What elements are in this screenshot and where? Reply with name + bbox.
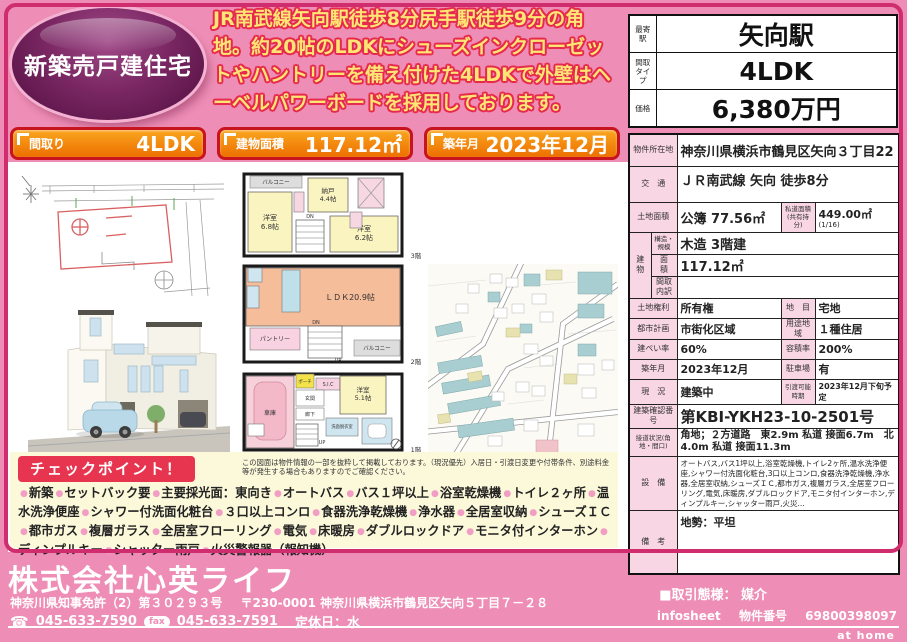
- layout-detail-label: 間取内訳: [651, 276, 677, 298]
- floor-plan-3f: バルコニー 洋室 6.8帖 納戸 4.4帖 洋室 6.2帖 DN 3階: [244, 174, 422, 260]
- permit-value: 第KBI-YKH23-10-2501号: [677, 404, 899, 428]
- private-road-share: (1/16): [819, 222, 896, 229]
- floor-plan-1f: 車庫 ポーチ S.I.C 玄関 廊下 洋室 5.1帖 洗面脱衣室 UP 1階: [244, 374, 422, 454]
- nearest-station-value: 矢向駅: [656, 15, 897, 53]
- table-row: 間取内訳: [629, 276, 899, 298]
- company-address: 〒230-0001 神奈川県横浜市鶴見区矢向５丁目７－２８: [241, 596, 549, 610]
- table-row: 物件所在地 神奈川県横浜市鶴見区矢向３丁目22: [629, 134, 899, 166]
- table-row: 最寄駅 矢向駅: [629, 15, 897, 53]
- room-size: 4.4帖: [320, 194, 337, 203]
- stairs-label: UP: [319, 440, 326, 446]
- land-right-label: 土地権利: [629, 298, 677, 318]
- disclaimer-note: この図面は物件情報の一部を抜粋して掲載しております。（現況優先）入居日・引渡日変…: [242, 458, 614, 477]
- chip-built-date: 築年月 2023年12月: [424, 127, 620, 160]
- coverage-label: 建ぺい率: [629, 339, 677, 359]
- transaction-type: ■取引態様： 媒介: [659, 584, 767, 603]
- location-label: 物件所在地: [629, 134, 677, 166]
- structure-label: 構造・規模: [651, 232, 677, 254]
- property-type-badge-label: 新築売戸建住宅: [24, 47, 192, 81]
- land-category-label: 地 目: [781, 298, 815, 318]
- table-row: 築年月 2023年12月 駐車場 有: [629, 359, 899, 379]
- chip-layout: 間取り 4LDK: [10, 127, 206, 160]
- chip-built-date-value: 2023年12月: [486, 129, 610, 158]
- chip-building-area-value: 117.12㎡: [305, 129, 402, 158]
- property-detail-table: 物件所在地 神奈川県横浜市鶴見区矢向３丁目22 交 通 ＪＲ南武線 矢向 徒歩8…: [628, 133, 900, 575]
- table-row: 都市計画 市街化区域 用途地域 １種住居: [629, 318, 899, 339]
- price-label: 価格: [629, 90, 656, 128]
- permit-label: 建築確認番号: [629, 404, 677, 428]
- location-map: [428, 264, 618, 454]
- checkpoint-panel: この図面は物件情報の一部を抜粋して掲載しております。（現況優先）入居日・引渡日変…: [10, 452, 618, 548]
- chip-layout-value: 4LDK: [136, 132, 195, 156]
- chip-built-date-label: 築年月: [443, 135, 479, 152]
- room-label: ポーチ: [298, 378, 312, 385]
- far-value: 200%: [815, 339, 899, 359]
- access-label: 交 通: [629, 166, 677, 202]
- equipment-value: オートバス,バス1坪以上,浴室乾燥機,トイレ2ヶ所,温水洗浄便座,シャワー付洗面…: [677, 456, 899, 511]
- land-area-label: 土地面積: [629, 202, 677, 232]
- remarks-label: 備 考: [629, 511, 677, 574]
- building-area-label: 面 積: [651, 254, 677, 276]
- land-category-value: 宅地: [815, 298, 899, 318]
- property-number: 69800398097: [805, 609, 897, 623]
- exterior-render: [28, 298, 230, 458]
- table-row: 間取タイプ 4LDK: [629, 53, 897, 90]
- checkpoint-title: チェックポイント！: [18, 456, 195, 482]
- property-number-label: 物件番号: [739, 609, 787, 623]
- road-value: 角地；２方道路 東2.9m 私道 接面6.7m 北4.0m 私道 接面11.3m: [677, 428, 899, 456]
- parking-value: 有: [815, 359, 899, 379]
- table-row: 設 備 オートバス,バス1坪以上,浴室乾燥機,トイレ2ヶ所,温水洗浄便座,シャワ…: [629, 456, 899, 511]
- layout-detail-value: [677, 276, 899, 298]
- room-label: S.I.C: [323, 382, 335, 388]
- headline-text: JR南武線矢向駅徒歩8分尻手駅徒歩9分の角地。約20帖のLDKにシューズインクロ…: [213, 5, 621, 117]
- built-date-label: 築年月: [629, 359, 677, 379]
- room-label: バルコニー: [363, 345, 390, 352]
- infosheet-label: infosheet: [657, 609, 721, 623]
- delivery-label: 引渡可能時期: [781, 379, 815, 404]
- private-road-value: 449.00㎡ (1/16): [815, 202, 899, 232]
- table-row: 建ぺい率 60% 容積率 200%: [629, 339, 899, 359]
- building-area-value: 117.12㎡: [677, 254, 899, 276]
- built-date-value: 2023年12月: [677, 359, 781, 379]
- floor-plan-2f: ＬＤＫ20.9帖 パントリー DN UP バルコニー 2階: [244, 266, 422, 366]
- table-row: 接道状況(角地・間口) 角地；２方道路 東2.9m 私道 接面6.7m 北4.0…: [629, 428, 899, 456]
- table-row: 建築確認番号 第KBI-YKH23-10-2501号: [629, 404, 899, 428]
- property-type-badge: 新築売戸建住宅: [12, 8, 204, 120]
- chip-building-area-label: 建物面積: [236, 135, 284, 152]
- city-plan-label: 都市計画: [629, 318, 677, 339]
- license-number: 神奈川県知事免許（2）第３０２９３号: [10, 596, 222, 610]
- athome-logo: at home: [837, 629, 895, 642]
- room-label: 洋室: [357, 385, 371, 394]
- building-label: 建 物: [629, 232, 651, 298]
- site-plan-drawing: [14, 174, 228, 298]
- room-size: 6.8帖: [261, 222, 279, 231]
- room-label: パントリー: [260, 336, 290, 343]
- coverage-value: 60%: [677, 339, 781, 359]
- floor-plan: バルコニー 洋室 6.8帖 納戸 4.4帖 洋室 6.2帖 DN 3階 ＬＤＫ2…: [230, 168, 428, 458]
- room-label: ＬＤＫ20.9帖: [325, 292, 375, 302]
- far-label: 容積率: [781, 339, 815, 359]
- land-area-value: 公簿 77.56㎡: [677, 202, 781, 232]
- stairs-label: DN: [312, 320, 320, 326]
- chip-layout-label: 間取り: [29, 135, 65, 152]
- table-row: 面 積 117.12㎡: [629, 254, 899, 276]
- table-row: 交 通 ＪＲ南武線 矢向 徒歩8分: [629, 166, 899, 202]
- room-label: 洗面脱衣室: [331, 423, 353, 430]
- stairs-label: UP: [335, 358, 342, 364]
- room-label: 洋室: [263, 213, 277, 222]
- table-row: 備 考 地勢：平坦: [629, 511, 899, 574]
- company-license-line: 神奈川県知事免許（2）第３０２９３号 〒230-0001 神奈川県横浜市鶴見区矢…: [10, 594, 562, 611]
- private-road-label: 私道面積(共有持分): [781, 202, 815, 232]
- status-value: 建築中: [677, 379, 781, 404]
- access-value: ＪＲ南武線 矢向 徒歩8分: [677, 166, 899, 202]
- table-row: 土地面積 公簿 77.56㎡ 私道面積(共有持分) 449.00㎡ (1/16): [629, 202, 899, 232]
- zoning-value: １種住居: [815, 318, 899, 339]
- table-row: 現 況 建築中 引渡可能時期 2023年12月下旬予定: [629, 379, 899, 404]
- room-label: バルコニー: [262, 179, 289, 186]
- room-label: 車庫: [264, 409, 276, 417]
- nearest-station-label: 最寄駅: [629, 15, 656, 53]
- table-row: 土地権利 所有権 地 目 宅地: [629, 298, 899, 318]
- station-price-table: 最寄駅 矢向駅 間取タイプ 4LDK 価格 6,380万円: [628, 14, 898, 128]
- room-label: 納戸: [322, 186, 336, 195]
- equipment-label: 設 備: [629, 456, 677, 511]
- floor-label: 3階: [411, 251, 422, 260]
- parking-label: 駐車場: [781, 359, 815, 379]
- zoning-label: 用途地域: [781, 318, 815, 339]
- company-contact-line: ☎ 045-633-7590 fax 045-633-7591 定休日：水: [10, 612, 360, 631]
- city-plan-value: 市街化区域: [677, 318, 781, 339]
- remarks-value: 地勢：平坦: [677, 511, 899, 574]
- table-row: 建 物 構造・規模 木造 3階建: [629, 232, 899, 254]
- checkpoint-items: ●新築●セットバック要●主要採光面：東向き●オートバス●バス１坪以上●浴室乾燥機…: [18, 484, 612, 560]
- land-right-value: 所有権: [677, 298, 781, 318]
- room-label: 玄関: [305, 395, 315, 402]
- footer-divider: [8, 626, 899, 628]
- price-value: 6,380万円: [656, 90, 897, 128]
- location-value: 神奈川県横浜市鶴見区矢向３丁目22: [677, 134, 899, 166]
- private-road-area: 449.00㎡: [819, 208, 872, 221]
- floor-label: 2階: [411, 357, 422, 366]
- delivery-value: 2023年12月下旬予定: [815, 379, 899, 404]
- infosheet-line: infosheet 物件番号 69800398097: [643, 607, 897, 624]
- room-size: 5.1帖: [355, 393, 372, 402]
- road-label: 接道状況(角地・間口): [629, 428, 677, 456]
- status-label: 現 況: [629, 379, 677, 404]
- room-label: 廊下: [305, 411, 315, 418]
- stairs-label: DN: [306, 214, 314, 220]
- structure-value: 木造 3階建: [677, 232, 899, 254]
- layout-type-label: 間取タイプ: [629, 53, 656, 90]
- holiday-note: 定休日：水: [295, 612, 360, 631]
- chip-building-area: 建物面積 117.12㎡: [217, 127, 413, 160]
- room-size: 6.2帖: [355, 233, 373, 242]
- layout-type-value: 4LDK: [656, 53, 897, 90]
- table-row: 価格 6,380万円: [629, 90, 897, 128]
